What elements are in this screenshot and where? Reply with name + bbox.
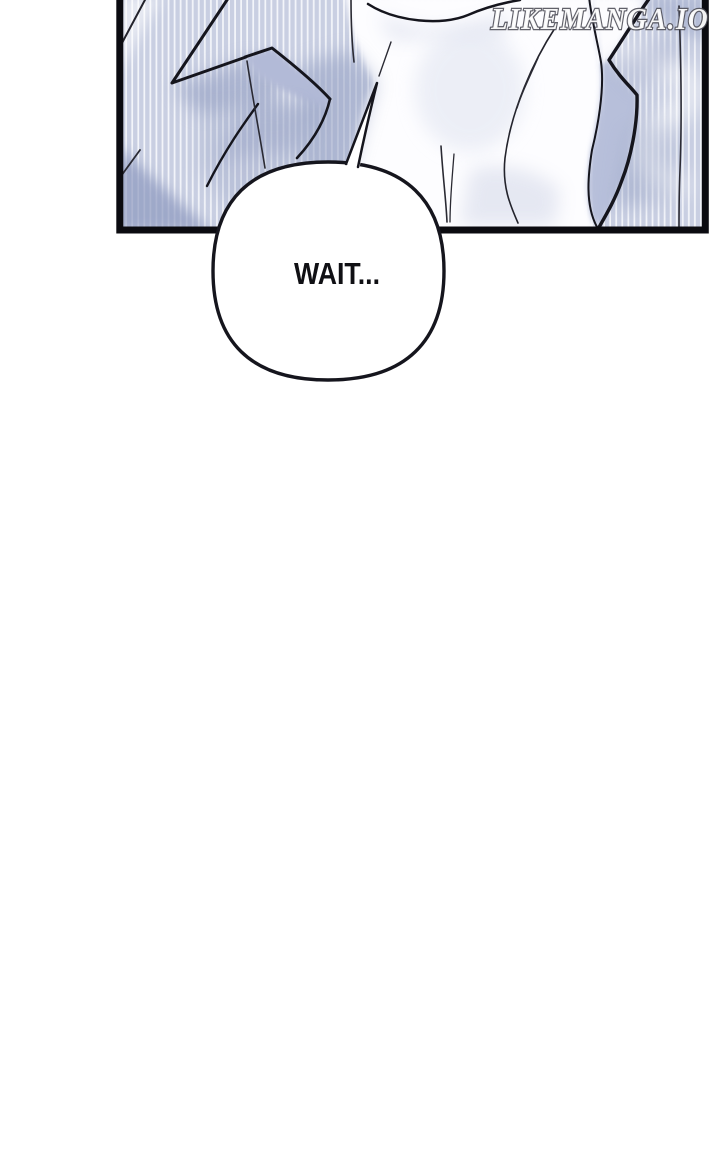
svg-text:WAIT...: WAIT... — [294, 257, 380, 291]
svg-text:LIKEMANGA.IO: LIKEMANGA.IO — [490, 1, 709, 36]
